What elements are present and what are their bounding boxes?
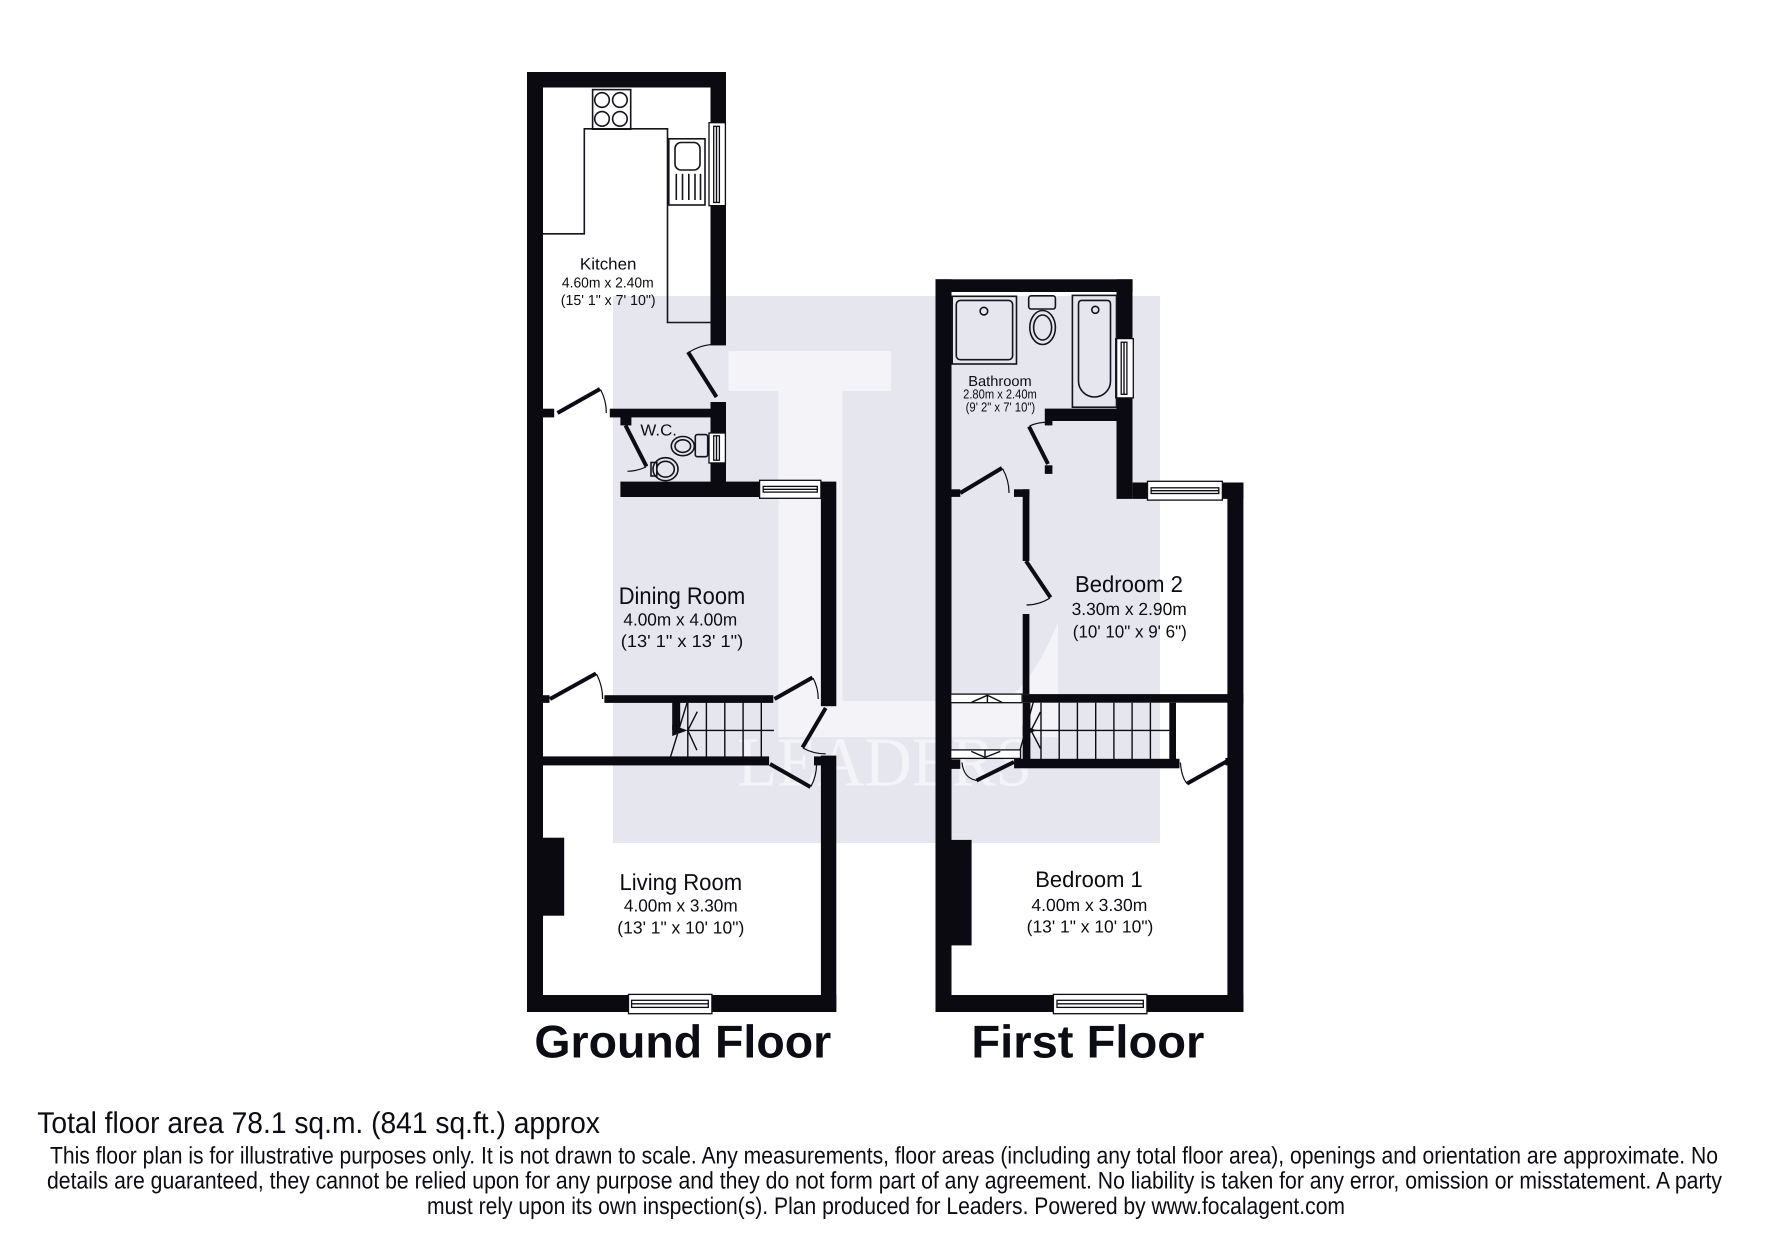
svg-text:Dining Room: Dining Room (619, 583, 746, 610)
svg-text:Kitchen: Kitchen (580, 256, 637, 274)
svg-text:(13' 1" x 10' 10"): (13' 1" x 10' 10") (617, 918, 744, 938)
svg-text:Total floor area 78.1 sq.m. (8: Total floor area 78.1 sq.m. (841 sq.ft.)… (37, 1107, 600, 1140)
svg-text:(13' 1" x 10' 10"): (13' 1" x 10' 10") (1027, 917, 1154, 937)
svg-text:4.00m x 3.30m: 4.00m x 3.30m (624, 896, 738, 916)
svg-text:First Floor: First Floor (971, 1016, 1204, 1068)
svg-text:Living Room: Living Room (620, 869, 743, 895)
svg-text:W.C.: W.C. (640, 423, 677, 440)
svg-text:LEADERS: LEADERS (737, 725, 1032, 802)
svg-text:(10' 10" x 9' 6"): (10' 10" x 9' 6") (1073, 622, 1187, 642)
svg-text:(13' 1" x 13' 1"): (13' 1" x 13' 1") (621, 631, 744, 651)
svg-text:4.00m x 4.00m: 4.00m x 4.00m (623, 610, 737, 630)
svg-text:3.30m x 2.90m: 3.30m x 2.90m (1072, 599, 1187, 619)
svg-text:Ground Floor: Ground Floor (534, 1016, 831, 1068)
svg-text:details are guaranteed, they c: details are guaranteed, they cannot be r… (47, 1168, 1722, 1195)
svg-text:must rely upon its own inspect: must rely upon its own inspection(s). Pl… (427, 1193, 1345, 1220)
svg-text:(9' 2" x 7' 10"): (9' 2" x 7' 10") (966, 399, 1036, 414)
svg-text:Bedroom 2: Bedroom 2 (1075, 571, 1183, 597)
svg-text:(15' 1" x 7' 10"): (15' 1" x 7' 10") (561, 293, 656, 309)
svg-text:4.60m x 2.40m: 4.60m x 2.40m (562, 276, 654, 292)
svg-text:Bedroom 1: Bedroom 1 (1035, 867, 1143, 892)
svg-text:This floor plan is for illustr: This floor plan is for illustrative purp… (50, 1143, 1718, 1170)
svg-text:4.00m x 3.30m: 4.00m x 3.30m (1031, 895, 1147, 915)
